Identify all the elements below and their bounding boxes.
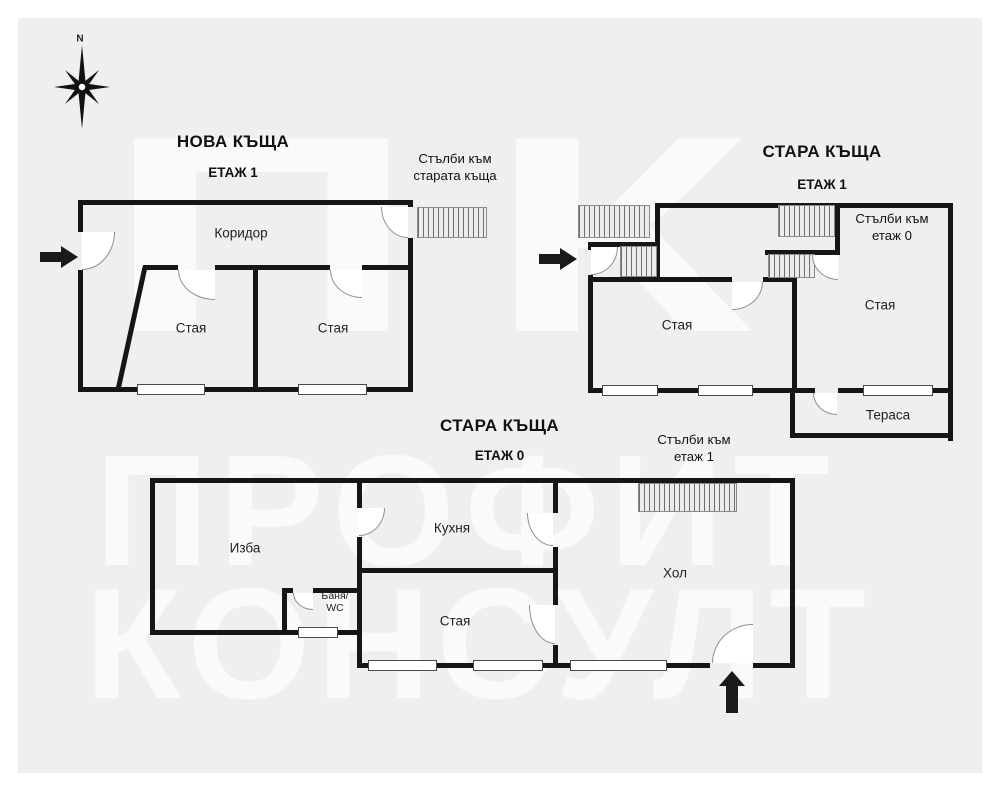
old-house-f1-title: СТАРА КЪЩА [712, 142, 932, 162]
wall [357, 630, 362, 668]
door-arc [732, 282, 763, 310]
wall [790, 393, 795, 438]
entrance-door-arc [712, 624, 753, 663]
wall [792, 277, 797, 393]
room-label-bath: Баня/ WC [312, 590, 358, 614]
window [698, 385, 753, 396]
wall [588, 277, 732, 282]
wall [357, 537, 362, 635]
new-house-stairs-note: Стълби към старата къща [394, 150, 516, 184]
new-house-entrance-arrow-icon [40, 246, 78, 268]
entrance-door-arc [591, 247, 618, 275]
door-arc [812, 255, 838, 280]
room-label-corridor: Коридор [214, 226, 267, 241]
door-arc [529, 605, 555, 644]
compass-north-label: N [76, 34, 83, 45]
compass-icon [48, 45, 116, 131]
room-label-terrace: Тераса [866, 408, 910, 423]
wall [753, 663, 795, 668]
door-arc [527, 513, 553, 546]
window [570, 660, 667, 671]
wall [553, 645, 558, 668]
room-label-hall: Хол [663, 566, 687, 581]
wall [553, 547, 558, 605]
window [298, 384, 367, 395]
room-label-kitchen: Кухня [434, 521, 470, 536]
door-arc [359, 508, 385, 536]
wall [282, 588, 287, 635]
vestibule-stairs-icon [620, 246, 657, 277]
wall [357, 478, 362, 508]
old-house-floor0-floorplan: Изба Кухня Стая Хол Баня/ WC [150, 478, 795, 673]
new-house-floor-label: ЕТАЖ 1 [128, 165, 338, 180]
old-house-f1-entrance-arrow-icon [539, 248, 577, 270]
old-house-f1-stairs-note: Стълби към етаж 0 [832, 210, 952, 244]
stairs-to-floor1-icon [638, 483, 737, 512]
wall [790, 433, 953, 438]
window [473, 660, 543, 671]
bath-door-arc [293, 593, 313, 610]
room-label: Стая [318, 321, 349, 336]
window [863, 385, 933, 396]
old-house-f0-title: СТАРА КЪЩА [392, 416, 607, 436]
old-house-f0-floor-label: ЕТАЖ 0 [392, 448, 607, 463]
window [602, 385, 658, 396]
room-label: Стая [176, 321, 207, 336]
upper-stairs-icon [778, 205, 835, 237]
new-house-floorplan: Коридор Стая Стая [78, 200, 413, 392]
floor-plan-sheet: ПК ПРОФИТ КОНСУЛТ N НОВА КЪЩА ЕТАЖ 1 Стъ… [0, 0, 1000, 791]
room-label: Стая [662, 318, 693, 333]
room-label: Стая [865, 298, 896, 313]
window [368, 660, 437, 671]
new-house-title: НОВА КЪЩА [128, 132, 338, 152]
room-label-room: Стая [440, 614, 471, 629]
wall [790, 478, 795, 668]
wall [553, 478, 558, 513]
old-house-f0-entrance-arrow-icon [719, 671, 745, 713]
wall [357, 568, 558, 573]
external-stairs-icon [578, 205, 650, 238]
terrace-door-arc [813, 393, 837, 415]
window [137, 384, 205, 395]
wall [588, 275, 593, 393]
stairs-to-floor0-icon [768, 254, 815, 278]
window [298, 627, 338, 638]
stairs-to-old-house-icon [417, 207, 487, 238]
room-label-cellar: Изба [230, 541, 261, 556]
old-house-f0-stairs-note: Стълби към етаж 1 [638, 431, 750, 465]
old-house-f1-floor-label: ЕТАЖ 1 [712, 177, 932, 192]
wall [150, 478, 155, 635]
